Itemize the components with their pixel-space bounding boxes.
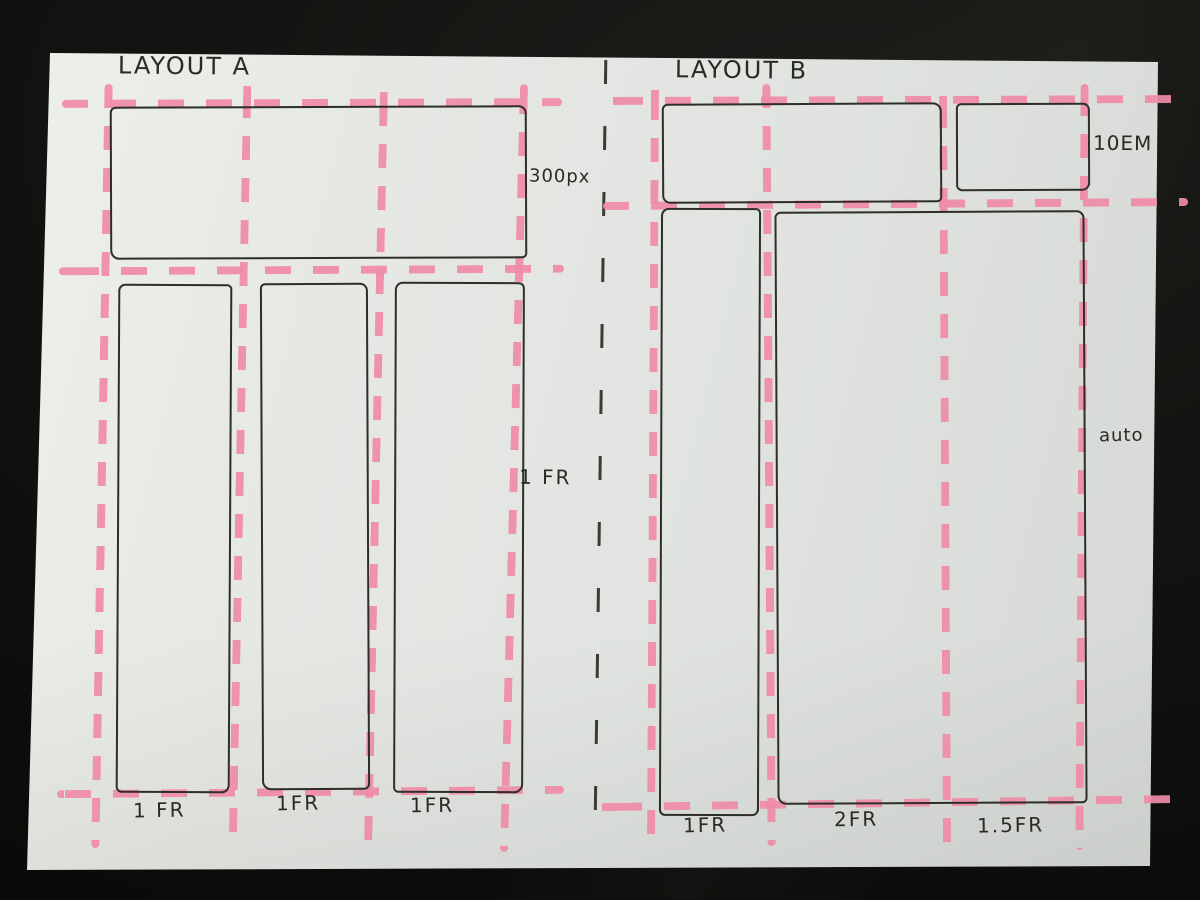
layout-b-col2-label: 2FR	[834, 807, 878, 832]
layout-b-sidebar-box	[659, 208, 761, 816]
layout-a-row2-label: 1 FR	[519, 465, 572, 489]
layout-a-column-box-3	[393, 282, 525, 793]
layout-a-row1-label: 300px	[529, 165, 591, 187]
layout-a-col1-label: 1 FR	[133, 798, 186, 823]
layout-b-row1-label: 10EM	[1093, 131, 1153, 156]
layout-b-title: LAYOUT B	[675, 55, 808, 84]
layout-a-col3-label: 1FR	[410, 793, 454, 817]
layout-b-col3-label: 1.5FR	[977, 812, 1045, 837]
layout-a-col2-label: 1FR	[276, 791, 321, 816]
layout-b-header-box-main	[662, 102, 943, 203]
layout-a-column-box-2	[260, 283, 370, 790]
layout-a-header-box	[110, 105, 528, 259]
layout-b-content-box	[774, 210, 1087, 805]
layout-a-column-box-1	[116, 284, 233, 794]
layout-b-row2-label: auto	[1099, 425, 1144, 447]
layout-b-header-box-side	[956, 103, 1090, 191]
layout-a-title: LAYOUT A	[118, 51, 251, 80]
layout-b-col1-label: 1FR	[683, 813, 728, 838]
